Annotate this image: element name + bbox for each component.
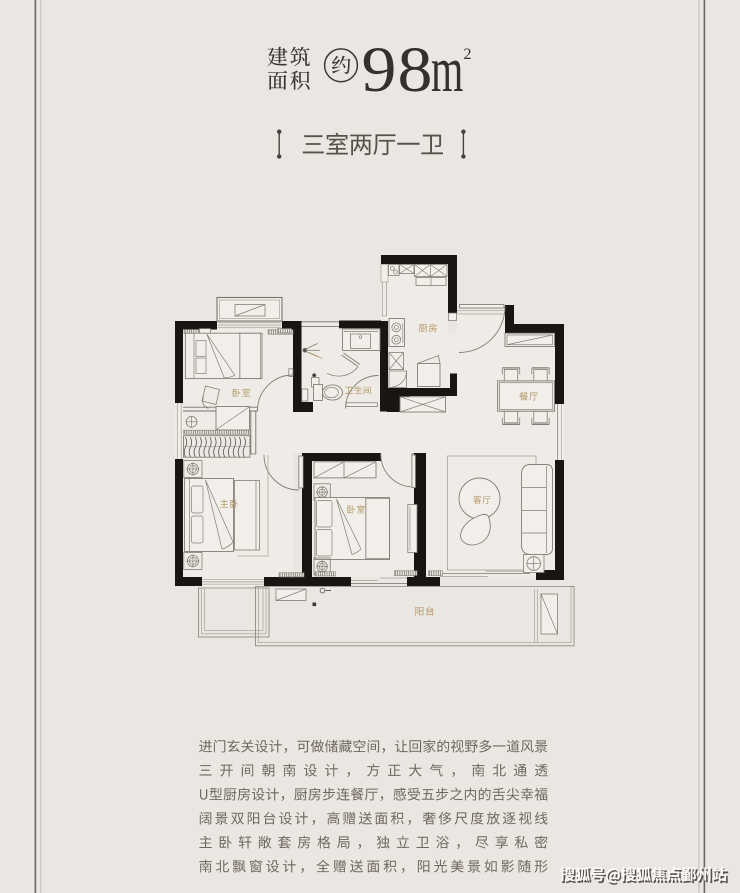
svg-text:m: m bbox=[431, 33, 463, 106]
svg-text:2: 2 bbox=[464, 46, 472, 63]
svg-text:98: 98 bbox=[362, 33, 434, 105]
